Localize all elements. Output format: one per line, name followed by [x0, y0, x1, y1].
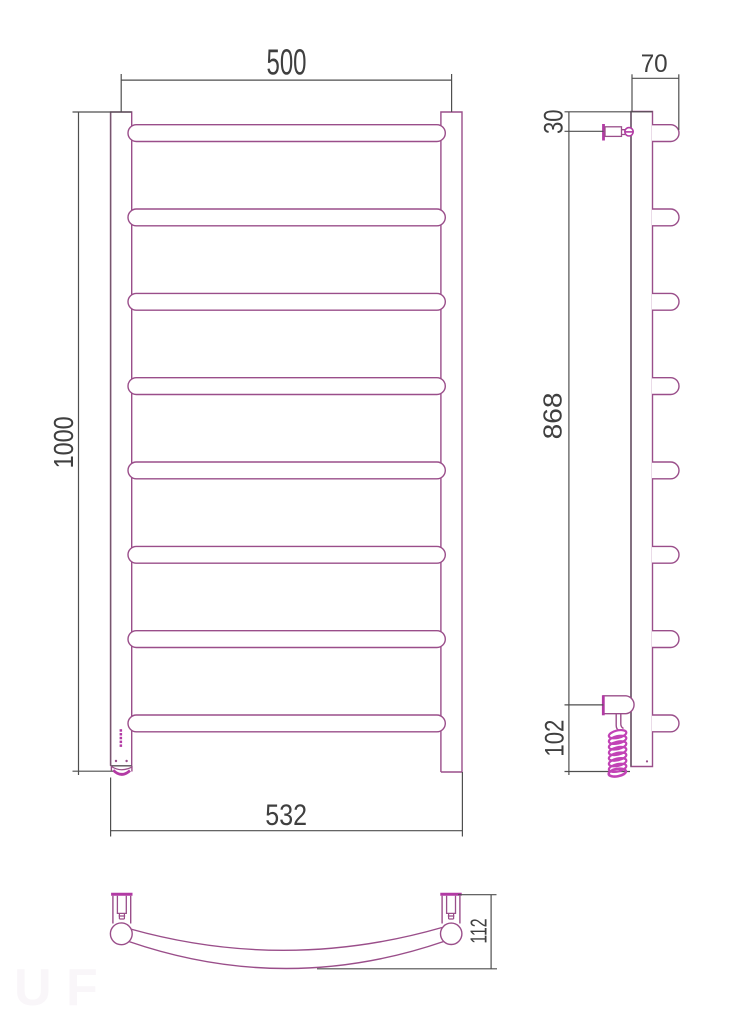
svg-text:868: 868 [538, 392, 568, 439]
svg-text:70: 70 [641, 50, 668, 78]
svg-text:532: 532 [265, 799, 307, 832]
svg-text:500: 500 [267, 41, 307, 82]
svg-text:U F: U F [14, 959, 98, 1017]
svg-text:1000: 1000 [48, 416, 79, 468]
svg-text:30: 30 [539, 109, 569, 134]
svg-text:112: 112 [466, 918, 492, 943]
svg-text:102: 102 [540, 720, 570, 757]
